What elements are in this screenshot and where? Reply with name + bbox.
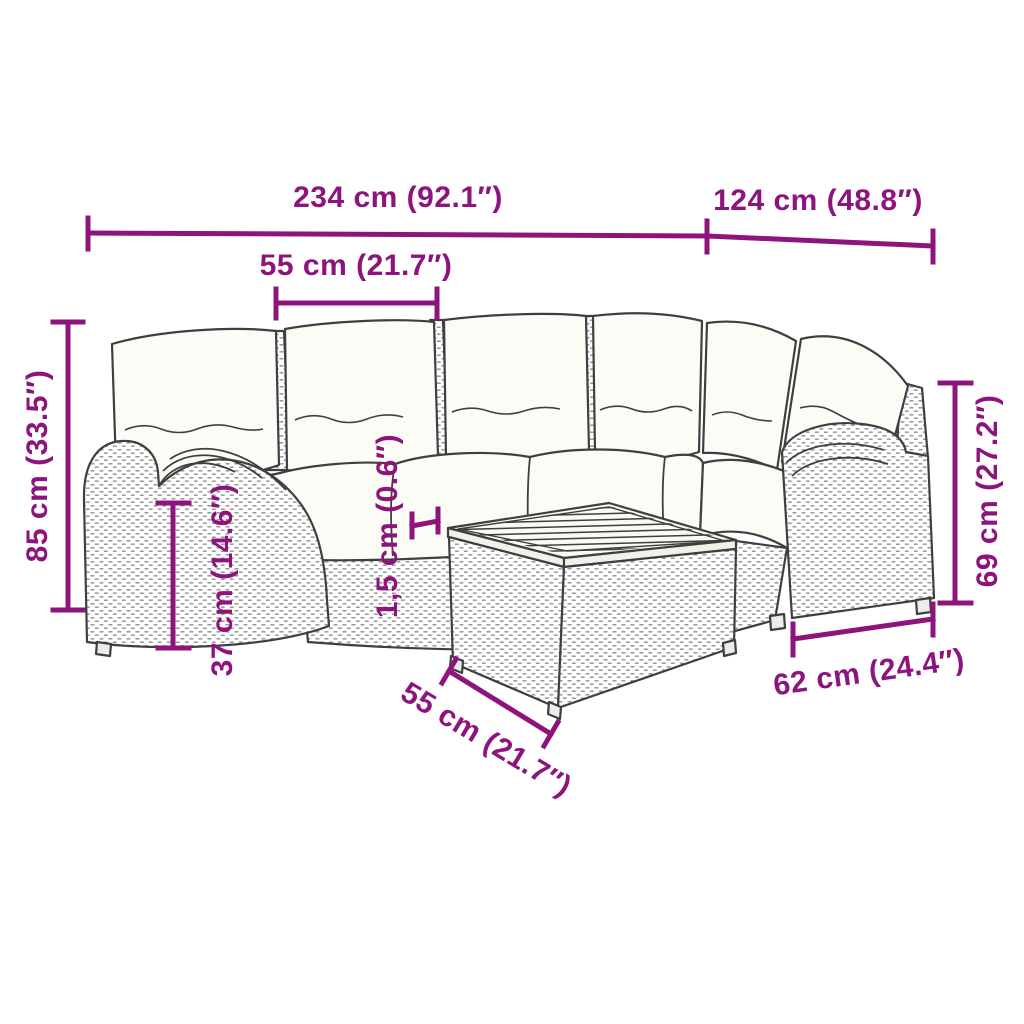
- dim-label-overall-width: 234 cm (92.1″): [293, 183, 503, 213]
- dimension-diagram: 234 cm (92.1″) 124 cm (48.8″) 55 cm (21.…: [0, 0, 1024, 1024]
- table-body-right: [558, 549, 736, 708]
- dimension-line-armrest-height: [940, 383, 971, 603]
- dimension-line-overall-width: [88, 218, 707, 252]
- dimension-line-overall-height: [53, 322, 83, 610]
- furniture-dimension-illustration: [0, 0, 1024, 1024]
- dim-label-armrest-height: 69 cm (27.2″): [973, 395, 1003, 588]
- back-cushion-2: [285, 320, 438, 472]
- back-cushion-3: [444, 314, 589, 462]
- dim-label-depth: 124 cm (48.8″): [713, 186, 923, 216]
- dim-label-seat-height: 37 cm (14.6″): [208, 484, 238, 677]
- dim-label-tabletop-thickness: 1,5 cm (0.6″): [373, 434, 403, 618]
- dim-label-seat-width: 55 cm (21.7″): [260, 251, 453, 281]
- dim-label-overall-height: 85 cm (33.5″): [23, 370, 53, 563]
- dimension-line-seat-width: [276, 289, 437, 318]
- dimension-line-depth: [707, 231, 933, 262]
- back-cushion-4: [593, 313, 702, 460]
- right-armrest: [782, 423, 934, 618]
- back-cushion-5: [703, 322, 796, 470]
